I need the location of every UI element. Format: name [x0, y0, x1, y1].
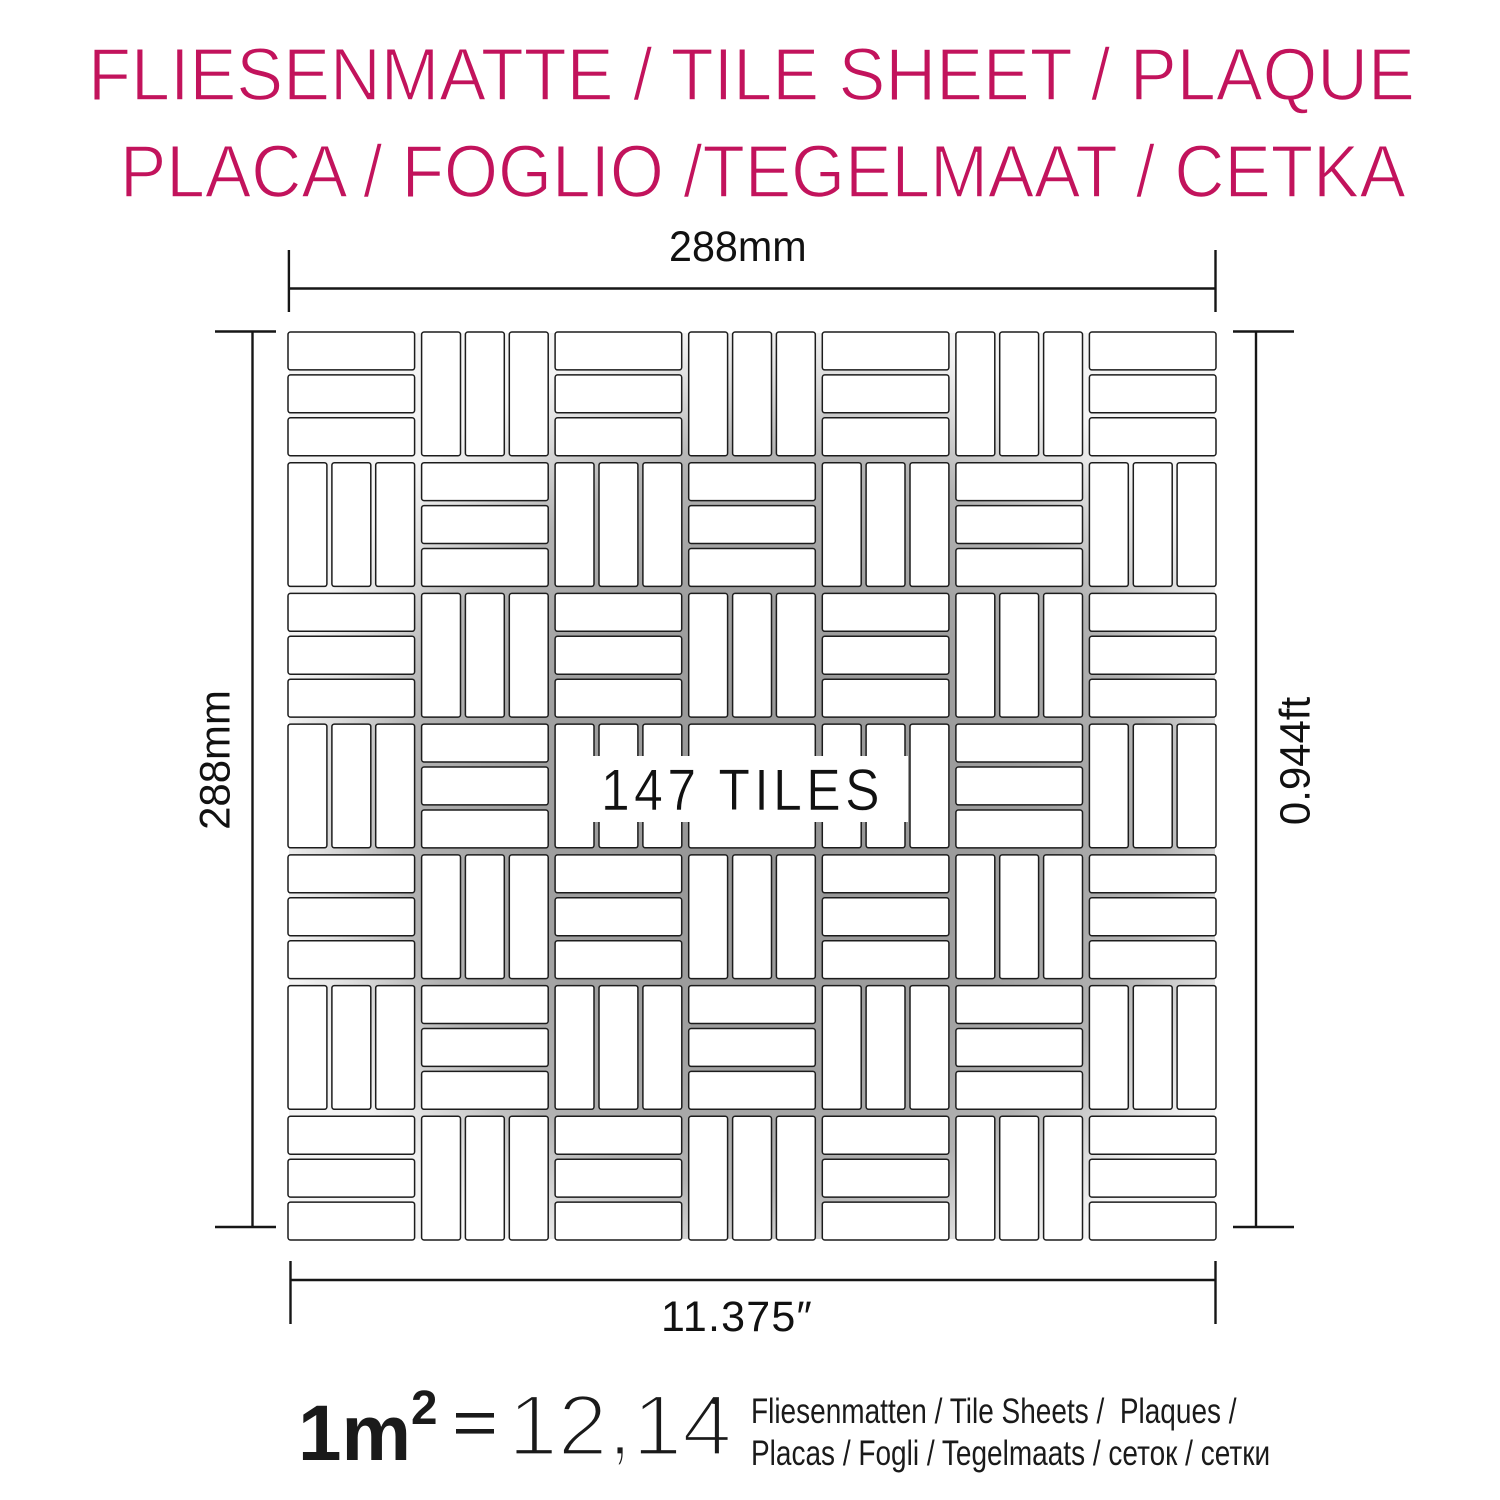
- svg-text:1m2: 1m2: [298, 1382, 437, 1477]
